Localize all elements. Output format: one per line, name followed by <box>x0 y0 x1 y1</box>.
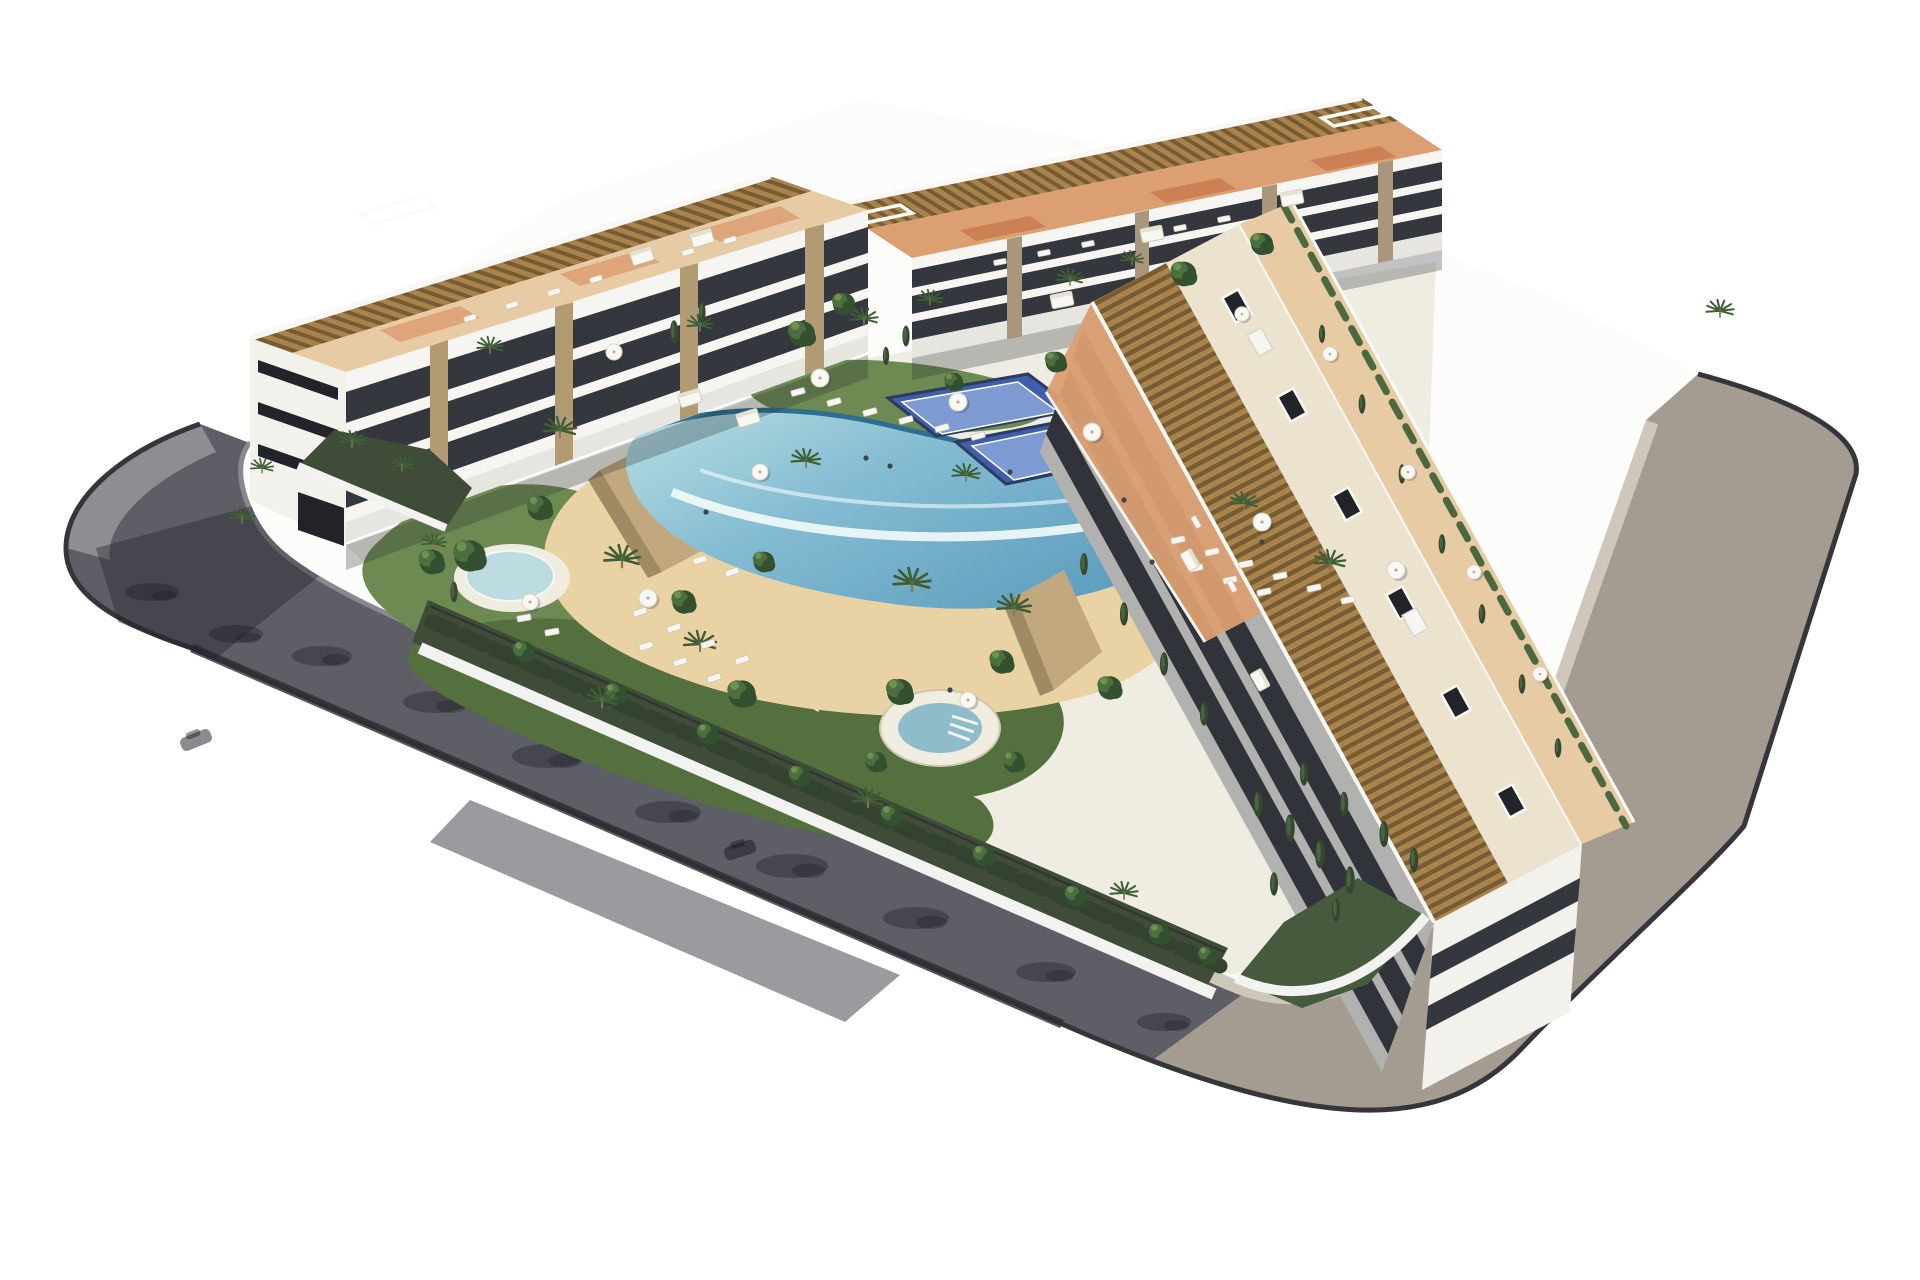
cypress-tree <box>1160 652 1168 675</box>
tree-shadow-on-road <box>1016 962 1076 982</box>
cypress-tree <box>883 347 889 365</box>
cypress-tree <box>1519 674 1526 694</box>
cypress-tree <box>1340 792 1349 817</box>
person <box>863 455 868 460</box>
palm-tree <box>1706 300 1733 318</box>
b1-stone-pillar-2 <box>555 302 573 466</box>
cypress-tree <box>1120 602 1128 625</box>
tree-shadow-on-road <box>125 583 179 601</box>
person <box>1259 539 1264 544</box>
tree-shadow-on-road <box>1137 1013 1191 1031</box>
cypress-tree <box>670 320 678 343</box>
person <box>1149 559 1154 564</box>
cypress-tree <box>1270 872 1278 895</box>
b2-stone-pillar-1 <box>1007 236 1022 339</box>
person <box>947 687 952 692</box>
cypress-tree <box>1285 814 1294 841</box>
cypress-tree <box>1359 394 1366 414</box>
cypress-tree <box>1315 840 1325 869</box>
b1-pergola-frame <box>360 196 436 224</box>
cypress-tree <box>1254 791 1263 817</box>
cypress-tree <box>1200 702 1208 725</box>
cypress-tree <box>1555 738 1562 758</box>
cypress-tree <box>1319 325 1325 343</box>
tree-shadow-on-road <box>292 646 352 666</box>
cypress-tree <box>1332 898 1340 921</box>
cypress-tree <box>450 582 457 603</box>
render-stage: Aerial 3D architectural render of a mode… <box>0 0 1920 1280</box>
person <box>887 463 892 468</box>
cypress-tree <box>1410 848 1419 873</box>
b1-stone-pillar-4 <box>805 224 824 375</box>
cypress-tree <box>698 302 705 323</box>
b2-stone-pillar-4 <box>1378 160 1393 263</box>
person <box>1007 469 1012 474</box>
tree-shadow-on-road <box>635 801 701 823</box>
cypress-tree <box>1080 553 1088 575</box>
cypress-tree <box>1479 604 1486 624</box>
tree-shadow-on-road <box>209 625 263 643</box>
aerial-render-canvas: Aerial 3D architectural render of a mode… <box>0 0 1920 1280</box>
cypress-tree <box>1380 821 1389 847</box>
cypress-tree <box>902 326 909 347</box>
person <box>703 509 708 514</box>
tree-shadow-on-road <box>756 854 828 878</box>
cypress-tree <box>1345 866 1354 893</box>
cypress-tree <box>1300 762 1308 785</box>
car-shadow <box>177 725 213 753</box>
person <box>1121 497 1126 502</box>
tree-shadow-on-road <box>883 907 949 929</box>
cypress-tree <box>1439 534 1446 554</box>
jacuzzi-water <box>898 703 982 753</box>
